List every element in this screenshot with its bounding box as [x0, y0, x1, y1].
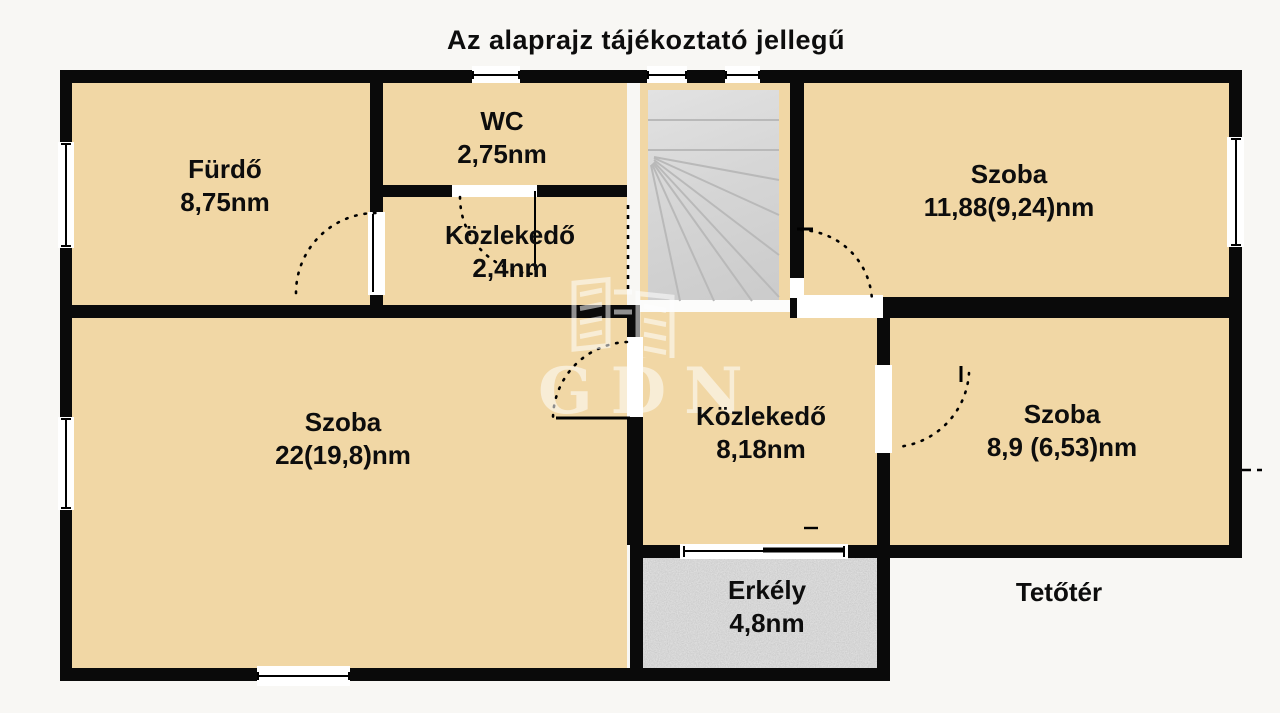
- window-icon-furdo-left: [58, 142, 74, 248]
- door-opening-balcony: [680, 544, 848, 559]
- window-icon-szoba-ne-right: [1227, 137, 1244, 247]
- door-opening-szoba-large: [627, 337, 643, 417]
- door-opening-szoba-ne: [797, 295, 883, 318]
- wall-outer-bottom-right: [890, 545, 1242, 558]
- room-name: Közlekedő: [445, 219, 575, 252]
- room-label-szoba-se: Szoba 8,9 (6,53)nm: [987, 398, 1137, 464]
- room-name: Szoba: [987, 398, 1137, 431]
- room-name: WC: [457, 105, 547, 138]
- window-icon-szoba-large-left: [58, 417, 74, 510]
- tetoter-label: Tetőtér: [1016, 577, 1102, 608]
- room-label-furdo: Fürdő 8,75nm: [180, 153, 270, 219]
- wall-mid-horizontal: [60, 305, 640, 318]
- passage-opening-stairs: [790, 278, 804, 298]
- wall-stub-center: [627, 312, 640, 337]
- room-label-kozlekedo-small: Közlekedő 2,4nm: [445, 219, 575, 285]
- room-area: 2,4nm: [445, 252, 575, 285]
- door-opening-furdo: [368, 212, 385, 295]
- room-name: Szoba: [275, 406, 411, 439]
- room-label-szoba-large: Szoba 22(19,8)nm: [275, 406, 411, 472]
- room-label-szoba-ne: Szoba 11,88(9,24)nm: [924, 158, 1095, 224]
- room-name: Erkély: [728, 574, 806, 607]
- plan-disclaimer-title: Az alaprajz tájékoztató jellegű: [447, 25, 845, 56]
- wall-balcony-right: [877, 545, 890, 681]
- staircase: [648, 90, 779, 302]
- floorplan-canvas: Az alaprajz tájékoztató jellegű: [0, 0, 1280, 713]
- room-name: Szoba: [924, 158, 1095, 191]
- room-label-wc: WC 2,75nm: [457, 105, 547, 171]
- window-icon-stairs-top-1: [647, 66, 687, 83]
- door-opening-wc: [452, 185, 537, 197]
- room-area: 2,75nm: [457, 138, 547, 171]
- room-area: 8,18nm: [696, 433, 826, 466]
- window-icon-szoba-large-bottom: [257, 666, 350, 686]
- room-label-erkely: Erkély 4,8nm: [728, 574, 806, 640]
- door-opening-szoba-se: [875, 365, 892, 453]
- wall-outer-bottom-left: [60, 668, 643, 681]
- room-name: Közlekedő: [696, 400, 826, 433]
- room-szoba-large-floor: [72, 318, 627, 668]
- wall-balcony-bottom: [643, 668, 877, 681]
- room-area: 11,88(9,24)nm: [924, 191, 1095, 224]
- room-area: 8,75nm: [180, 186, 270, 219]
- wall-stairs-szoba: [790, 83, 804, 280]
- room-area: 22(19,8)nm: [275, 439, 411, 472]
- room-name: Fürdő: [180, 153, 270, 186]
- room-area: 8,9 (6,53)nm: [987, 431, 1137, 464]
- stair-landing-opening: [640, 300, 790, 312]
- wall-szoba-large-right: [627, 417, 643, 545]
- wall-balcony-left: [630, 545, 643, 681]
- room-area: 4,8nm: [728, 607, 806, 640]
- window-icon-stairs-top-2: [725, 66, 760, 83]
- room-label-kozlekedo-main: Közlekedő 8,18nm: [696, 400, 826, 466]
- window-icon-wc-top: [472, 66, 520, 83]
